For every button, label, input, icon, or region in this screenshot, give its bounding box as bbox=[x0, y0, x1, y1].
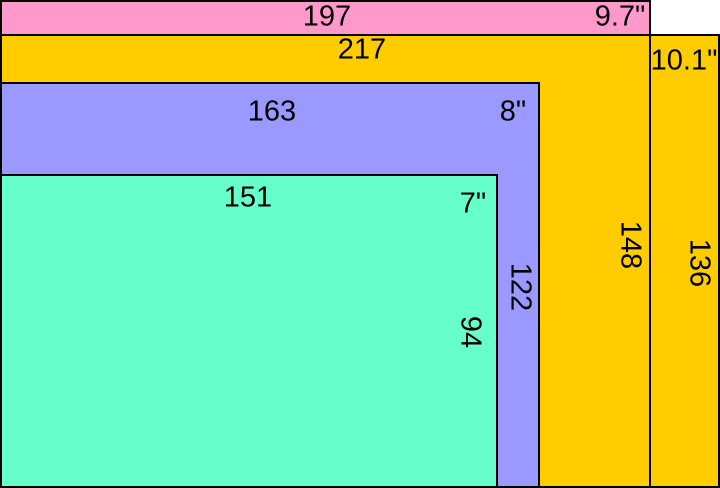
width-label-7-inch: 151 bbox=[224, 184, 272, 213]
height-label-9-7-inch: 148 bbox=[616, 221, 645, 269]
rect-7-inch-fill bbox=[0, 174, 498, 488]
height-label-7-inch: 94 bbox=[456, 316, 485, 348]
height-label-8-inch: 122 bbox=[506, 263, 535, 311]
height-label-10-1-inch: 136 bbox=[685, 239, 714, 287]
width-label-9-7-inch: 197 bbox=[303, 3, 351, 32]
diagonal-label-8-inch: 8" bbox=[500, 98, 526, 127]
diagonal-label-7-inch: 7" bbox=[460, 190, 486, 219]
width-label-8-inch: 163 bbox=[248, 98, 296, 127]
width-label-10-1-inch: 217 bbox=[338, 36, 386, 65]
diagonal-label-10-1-inch: 10.1" bbox=[651, 47, 718, 76]
diagonal-label-9-7-inch: 9.7" bbox=[595, 3, 646, 32]
screen-size-comparison-diagram: 197 217 163 151 9.7" 10.1" 8" 7" 148 136… bbox=[0, 0, 720, 488]
